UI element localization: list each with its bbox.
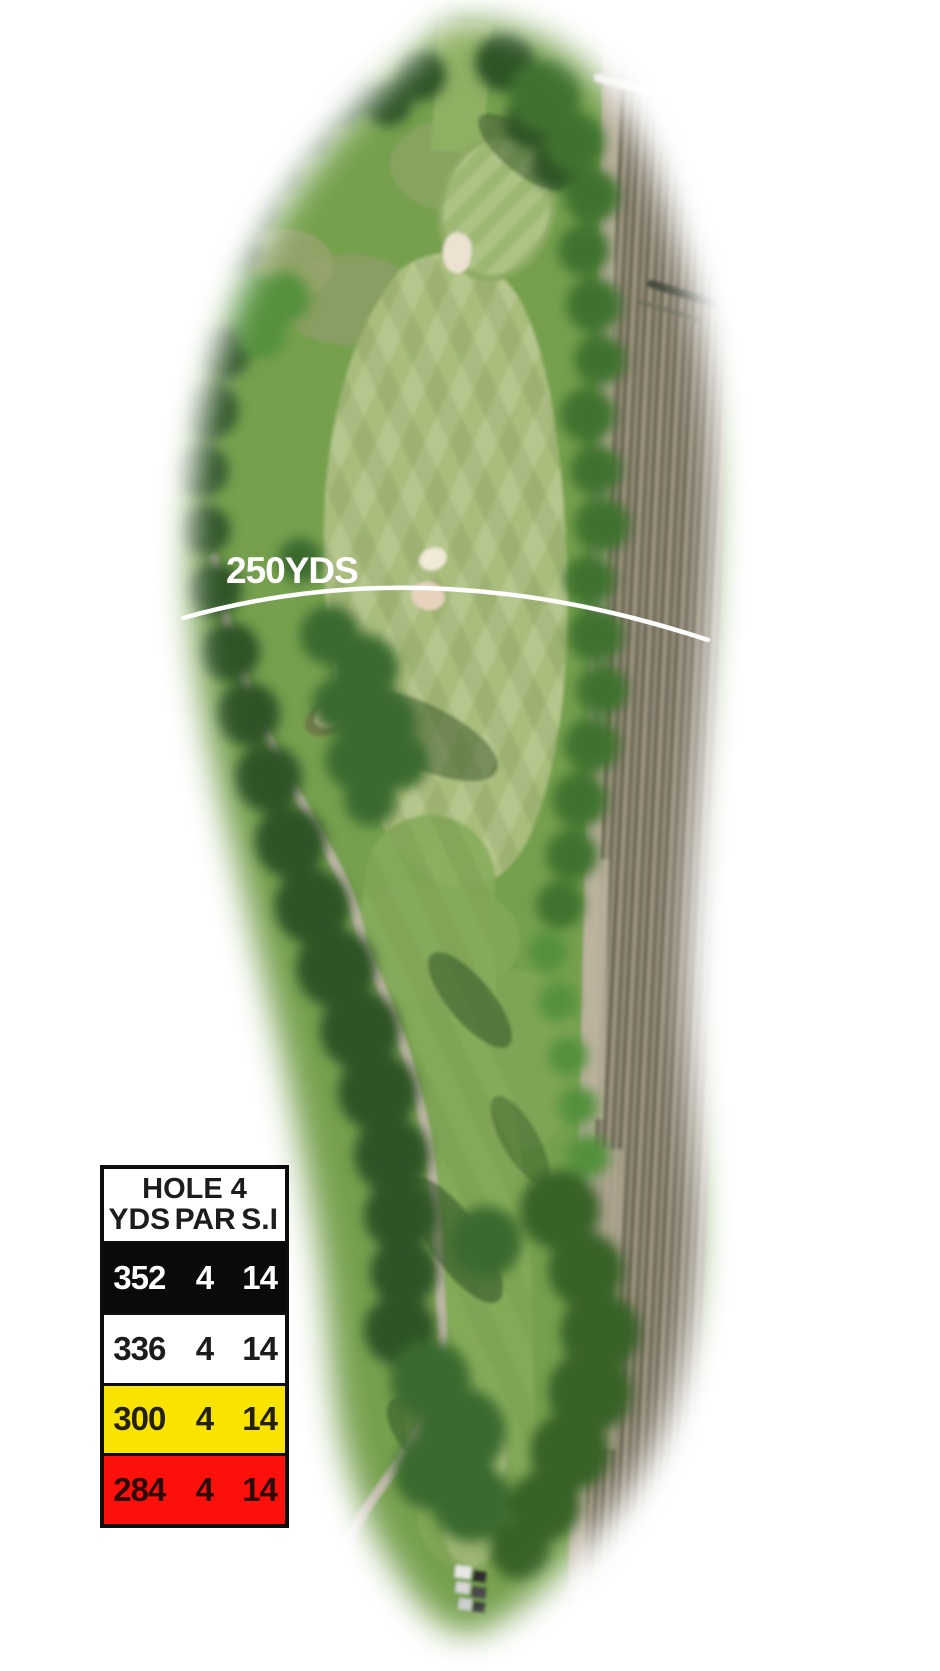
tee-row-yellow: 300 4 14 xyxy=(104,1383,285,1454)
scorecard-column-headers: YDS PAR S.I xyxy=(104,1204,285,1236)
yds-value-yellow: 300 xyxy=(104,1400,175,1438)
yardage-label: 250YDS xyxy=(226,550,358,591)
si-value-yellow: 14 xyxy=(234,1400,285,1438)
yds-value-red: 284 xyxy=(104,1471,175,1509)
par-value-black: 4 xyxy=(175,1259,235,1297)
si-value-black: 14 xyxy=(234,1259,285,1297)
scorecard: HOLE 4 YDS PAR S.I 352 4 14 336 4 14 300… xyxy=(100,1165,289,1528)
tee-row-white: 336 4 14 xyxy=(104,1312,285,1383)
tee-row-red: 284 4 14 xyxy=(104,1453,285,1524)
col-header-yds: YDS xyxy=(104,1204,175,1236)
tee-row-black: 352 4 14 xyxy=(104,1241,285,1312)
col-header-par: PAR xyxy=(175,1204,235,1236)
yds-value-white: 336 xyxy=(104,1330,175,1368)
yds-value-black: 352 xyxy=(104,1259,175,1297)
hole-guide-page: 250YDS HOLE 4 YDS PAR S.I 352 4 14 336 4… xyxy=(0,0,940,1671)
si-value-red: 14 xyxy=(234,1471,285,1509)
par-value-white: 4 xyxy=(175,1330,235,1368)
hole-title: HOLE 4 xyxy=(104,1174,285,1204)
par-value-yellow: 4 xyxy=(175,1400,235,1438)
par-value-red: 4 xyxy=(175,1471,235,1509)
si-value-white: 14 xyxy=(234,1330,285,1368)
scorecard-header: HOLE 4 YDS PAR S.I xyxy=(104,1169,285,1241)
col-header-si: S.I xyxy=(234,1204,285,1236)
